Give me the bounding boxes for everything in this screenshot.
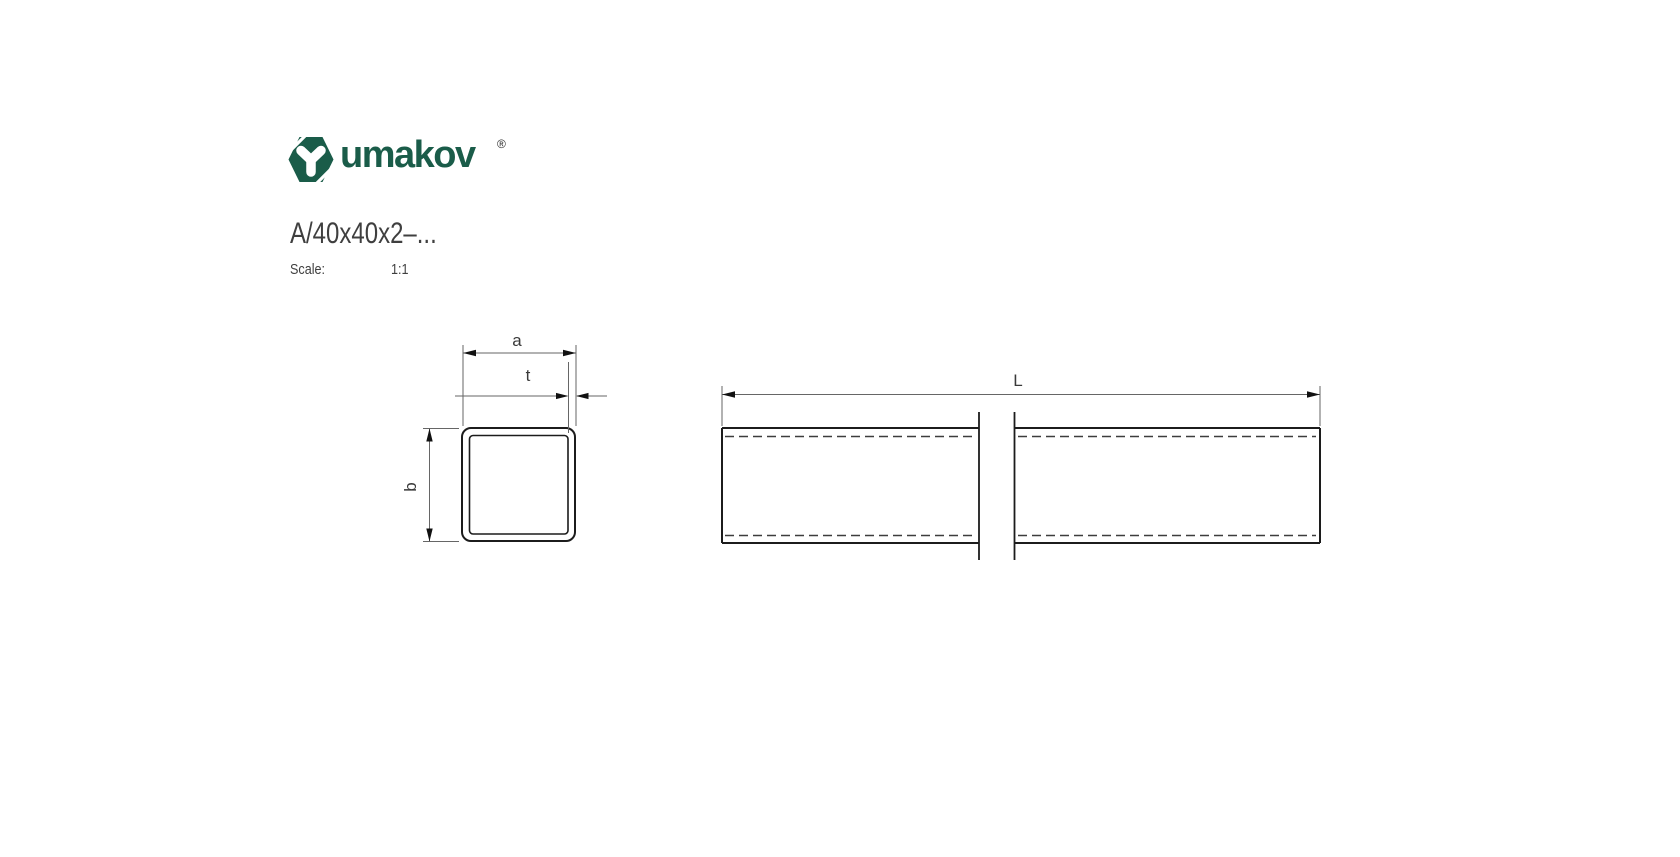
page-title: A/40x40x2–... bbox=[290, 219, 437, 249]
registered-trademark-icon: ® bbox=[497, 137, 506, 151]
umakov-hexagon-icon bbox=[288, 136, 334, 183]
tube-side-outline bbox=[722, 428, 1320, 543]
tube-outer-profile bbox=[462, 428, 575, 541]
break-lines bbox=[979, 412, 1015, 560]
side-view: L bbox=[722, 371, 1320, 560]
technical-drawing: a t b bbox=[380, 300, 1360, 590]
dimension-a bbox=[463, 345, 576, 426]
scale-label: Scale: bbox=[290, 262, 325, 277]
tube-inner-profile bbox=[470, 436, 569, 535]
dimension-l bbox=[722, 386, 1320, 426]
cross-section-view: a t b bbox=[401, 331, 607, 542]
brand-wordmark: umakov bbox=[340, 136, 475, 174]
dimension-b-label: b bbox=[401, 482, 420, 491]
dimension-t bbox=[455, 362, 607, 433]
dimension-t-label: t bbox=[526, 366, 531, 385]
scale-value: 1:1 bbox=[391, 262, 409, 277]
dimension-l-label: L bbox=[1013, 371, 1022, 390]
hidden-inner-wall-lines bbox=[725, 437, 1316, 536]
dimension-b bbox=[423, 429, 459, 542]
dimension-a-label: a bbox=[512, 331, 522, 350]
